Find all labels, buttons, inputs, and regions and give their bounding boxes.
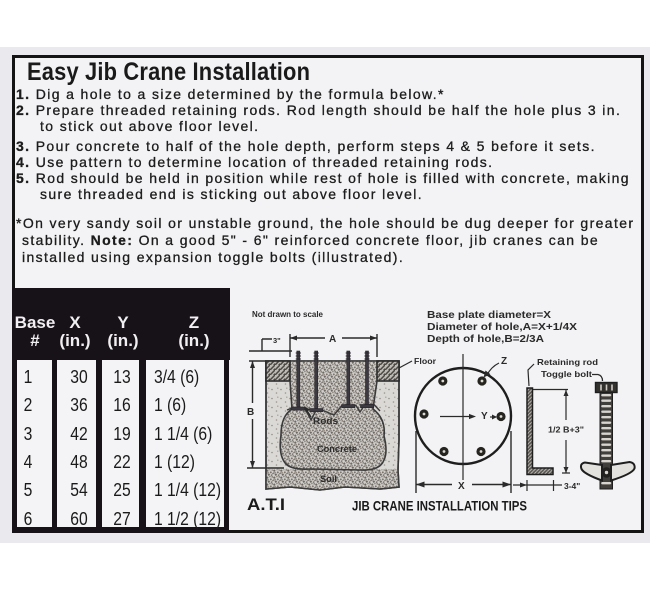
svg-text:Toggle bolt: Toggle bolt [541,369,592,379]
svg-text:3": 3" [273,336,281,345]
svg-text:Concrete: Concrete [317,444,357,454]
svg-text:JIB CRANE INSTALLATION TIPS: JIB CRANE INSTALLATION TIPS [352,498,527,514]
svg-text:Y: Y [481,411,488,422]
svg-text:Rods: Rods [313,416,338,426]
svg-text:Z: Z [501,356,507,367]
svg-text:X: X [458,481,465,492]
svg-text:Base plate diameter=X: Base plate diameter=X [427,309,551,321]
svg-text:Diameter of hole,A=X+1/4X: Diameter of hole,A=X+1/4X [427,321,577,333]
svg-text:Floor: Floor [414,357,436,366]
svg-text:1/2 B+3": 1/2 B+3" [548,425,584,435]
svg-text:B: B [247,407,254,418]
svg-text:A.T.I: A.T.I [247,495,285,514]
svg-text:Retaining rod: Retaining rod [537,357,598,367]
svg-text:Not drawn to scale: Not drawn to scale [252,309,323,319]
svg-text:3-4": 3-4" [564,481,580,491]
svg-text:A: A [329,334,336,345]
svg-text:Soil: Soil [320,474,337,484]
svg-text:Depth of hole,B=2/3A: Depth of hole,B=2/3A [427,333,544,345]
